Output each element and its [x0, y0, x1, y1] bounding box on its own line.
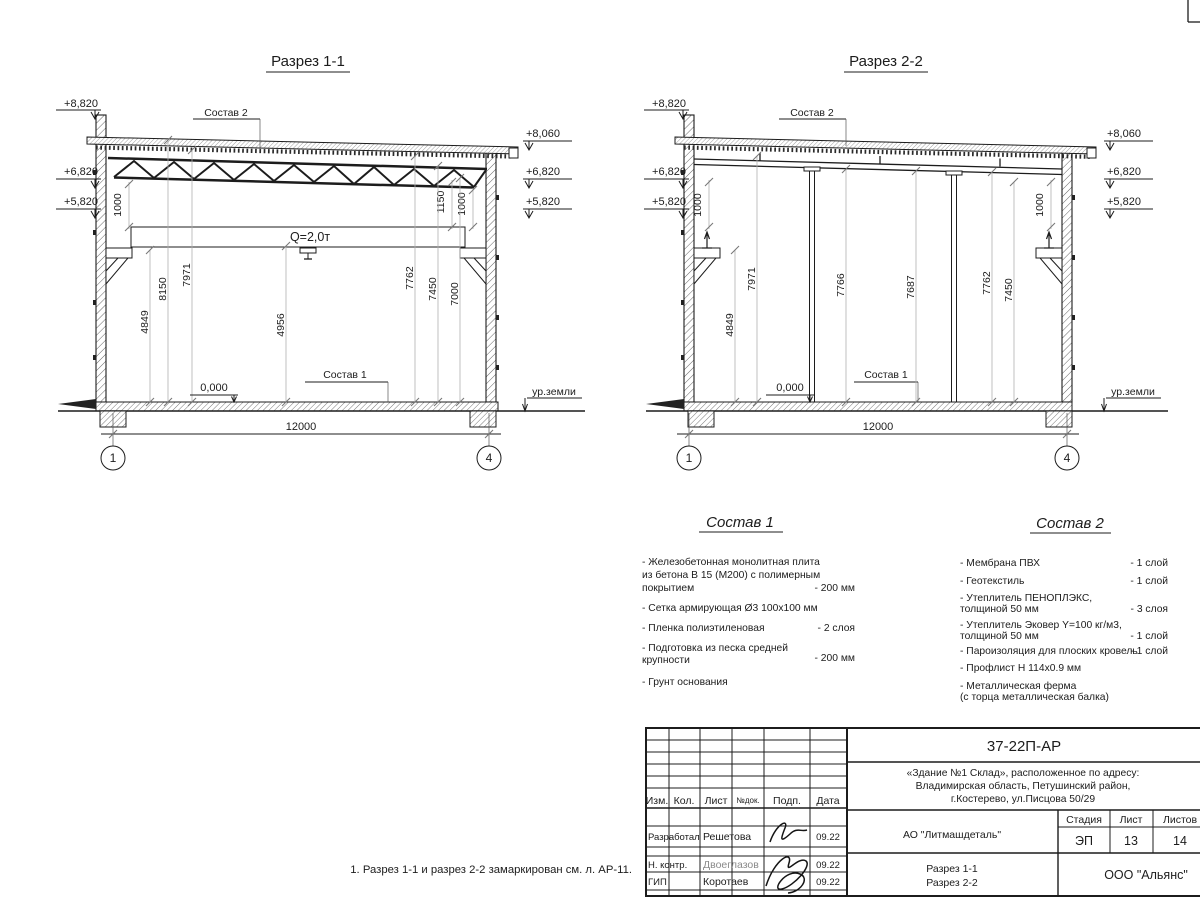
drawing-title-line: Разрез 2-2 — [926, 877, 978, 889]
axis-number: 1 — [110, 451, 117, 465]
height-dim: 7687 — [905, 275, 917, 299]
list-qty: - 1 слой — [1130, 631, 1168, 642]
height-dim: 4849 — [724, 313, 736, 337]
sostav2-callout: Состав 2 — [790, 107, 834, 119]
tb-date: 09.22 — [816, 877, 840, 888]
tb-col-header: Кол. — [674, 795, 695, 807]
elevation-label: +8,820 — [64, 98, 98, 110]
ground-level-label: ур.земли — [532, 386, 576, 398]
s1-floor-slab — [96, 402, 498, 411]
tb-role: Н. контр. — [648, 860, 687, 871]
tb-col-header: Подп. — [773, 795, 801, 807]
list-line: - Профлист Н 114х0.9 мм — [960, 662, 1081, 674]
tb-name: Решетова — [703, 831, 751, 843]
s2-interior-column-2 — [946, 171, 962, 402]
list-line: из бетона В 15 (М200) с полимерным — [642, 569, 820, 581]
object-address-line: «Здание №1 Склад», расположенное по адре… — [907, 768, 1140, 779]
height-dim: 4849 — [139, 310, 151, 334]
height-dim: 7000 — [449, 282, 461, 306]
height-dim: 7971 — [746, 267, 758, 291]
elevation-label: +5,820 — [652, 196, 686, 208]
list-line: - Пароизоляция для плоских кровель — [960, 646, 1138, 657]
height-dim: 7450 — [1003, 278, 1015, 302]
span-dim: 12000 — [286, 421, 317, 433]
section-2-2-drawing: Разрез 2-2 — [644, 53, 1168, 470]
organization-name: ООО "Альянс" — [1104, 868, 1188, 882]
elevation-label: +8,060 — [1107, 128, 1141, 140]
s2-crane-rail-marker — [702, 232, 712, 248]
sheets-header: Листов — [1163, 814, 1198, 826]
tb-col-header: Изм. — [646, 795, 669, 807]
height-dim: 4956 — [275, 313, 287, 337]
list-line: - Подготовка из песка средней — [642, 643, 788, 654]
list-line: - Утеплитель Эковер Y=100 кг/м3, — [960, 620, 1122, 631]
axis-number: 4 — [1064, 451, 1071, 465]
list-line: толщиной 50 мм — [960, 604, 1039, 615]
object-address-line: Владимирская область, Петушинский район, — [916, 780, 1131, 792]
list-line: - Металлическая ферма — [960, 680, 1077, 692]
elevation-label: +8,060 — [526, 128, 560, 140]
s1-left-corbel — [106, 248, 132, 284]
zero-level-label: 0,000 — [776, 382, 804, 394]
sheet-canvas: Разрез 1-1 — [0, 0, 1200, 900]
s2-roof-slab — [675, 137, 1096, 154]
section-1-1-drawing: Разрез 1-1 — [56, 53, 585, 470]
list-line: покрытием — [642, 583, 694, 594]
s1-right-wall — [486, 152, 496, 402]
tb-date: 09.22 — [816, 860, 840, 871]
s1-right-corbel — [460, 248, 486, 284]
s1-hoist-trolley — [300, 248, 316, 259]
dim-label: 1000 — [456, 192, 468, 216]
sheets-total: 14 — [1173, 834, 1187, 848]
sheet-number: 13 — [1124, 834, 1138, 848]
s2-interior-column-1 — [804, 167, 820, 402]
sheet-header: Лист — [1120, 814, 1143, 826]
signature — [766, 857, 807, 893]
sostav1-callout: Состав 1 — [864, 369, 908, 381]
height-dim: 7766 — [835, 273, 847, 297]
tb-role: ГИП — [648, 877, 667, 888]
s1-right-footing — [470, 411, 496, 427]
s2-roof-end-cap — [1087, 148, 1096, 158]
crane-capacity-label: Q=2,0т — [290, 230, 330, 244]
sostav2-title: Состав 2 — [1036, 515, 1104, 532]
sostav1-callout: Состав 1 — [323, 369, 367, 381]
list-qty: - 200 мм — [815, 653, 856, 664]
sostav1-list: Состав 1 - Железобетонная монолитная пли… — [642, 514, 855, 688]
list-line: - Мембрана ПВХ — [960, 557, 1040, 569]
list-qty: - 1 слой — [1130, 576, 1168, 587]
axis-number: 1 — [686, 451, 693, 465]
document-code: 37-22П-АР — [987, 738, 1061, 755]
section-1-title: Разрез 1-1 — [271, 53, 345, 70]
height-dim: 7450 — [427, 277, 439, 301]
sostav2-list: Состав 2 - Мембрана ПВХ - 1 слой - Геоте… — [960, 515, 1168, 703]
s2-ground-wedge — [646, 399, 684, 409]
height-dim: 7971 — [181, 263, 193, 287]
s1-left-wall — [96, 115, 106, 402]
height-dim: 7762 — [404, 266, 416, 290]
object-address-line: г.Костерево, ул.Писцова 50/29 — [951, 794, 1095, 805]
dim-label: 1000 — [692, 193, 704, 217]
s2-right-wall — [1062, 152, 1072, 402]
s2-floor-slab — [684, 402, 1072, 411]
list-line: (с торца металлическая балка) — [960, 691, 1109, 703]
s2-left-corbel — [694, 248, 720, 284]
section-2-title: Разрез 2-2 — [849, 53, 923, 70]
list-line: - Утеплитель ПЕНОПЛЭКС, — [960, 593, 1092, 604]
elevation-label: +5,820 — [526, 196, 560, 208]
s2-roof-beam-bottom — [694, 165, 1062, 175]
elevation-label: +6,820 — [526, 166, 560, 178]
axis-number: 4 — [486, 451, 493, 465]
s2-left-footing — [688, 411, 714, 427]
ground-level-label: ур.земли — [1111, 386, 1155, 398]
s2-right-footing — [1046, 411, 1072, 427]
tb-col-header: Дата — [816, 795, 839, 807]
s2-right-corbel — [1036, 248, 1062, 284]
s1-roof-end-cap — [509, 148, 518, 158]
tb-role: Разработал — [648, 832, 700, 843]
zero-level-label: 0,000 — [200, 382, 228, 394]
height-dim: 7762 — [981, 271, 993, 295]
s1-ground-wedge — [58, 399, 96, 409]
tb-col-header: Лист — [705, 795, 728, 807]
sostav1-title: Состав 1 — [706, 514, 774, 531]
list-qty: - 1 слой — [1130, 646, 1168, 657]
tb-col-header: №док. — [736, 796, 759, 805]
elevation-label: +5,820 — [64, 196, 98, 208]
dim-label: 1000 — [112, 193, 124, 217]
list-line: - Сетка армирующая Ø3 100х100 мм — [642, 603, 818, 614]
span-dim: 12000 — [863, 421, 894, 433]
s2-left-wall — [684, 115, 694, 402]
tb-name: Двоеглазов — [703, 859, 759, 871]
list-qty: - 2 слоя — [818, 623, 855, 634]
change-table: Изм. Кол. Лист №док. Подп. Дата Разработ… — [646, 728, 847, 896]
s2-crane-rail-marker — [1044, 232, 1054, 248]
sostav2-callout: Состав 2 — [204, 107, 248, 119]
stage-header: Стадия — [1066, 814, 1102, 826]
list-qty: - 200 мм — [815, 583, 856, 594]
list-line: - Грунт основания — [642, 677, 728, 688]
list-qty: - 1 слой — [1130, 558, 1168, 569]
title-block-right: 37-22П-АР «Здание №1 Склад», расположенн… — [847, 738, 1200, 896]
elevation-label: +6,820 — [1107, 166, 1141, 178]
dim-label: 1000 — [1034, 193, 1046, 217]
elevation-label: +6,820 — [652, 166, 686, 178]
s1-structure — [58, 115, 585, 427]
stage-value: ЭП — [1075, 834, 1093, 848]
drawing-sheet: Разрез 1-1 — [0, 0, 1200, 900]
tb-name: Коротаев — [703, 876, 749, 888]
dim-label: 1150 — [435, 191, 447, 214]
list-line: - Железобетонная монолитная плита — [642, 556, 820, 568]
sheet-note: 1. Разрез 1-1 и разрез 2-2 замаркирован … — [350, 864, 632, 876]
list-line: - Пленка полиэтиленовая — [642, 623, 765, 634]
frame-corner-fragment — [1188, 0, 1200, 22]
list-line: - Геотекстиль — [960, 576, 1024, 587]
elevation-label: +8,820 — [652, 98, 686, 110]
elevation-label: +6,820 — [64, 166, 98, 178]
tb-date: 09.22 — [816, 832, 840, 843]
s2-dimensions: 1000 1000 4849 7971 7766 7687 7762 7450 … — [677, 152, 1161, 470]
customer-name: АО "Литмашдеталь" — [903, 829, 1001, 841]
list-line: крупности — [642, 655, 690, 666]
drawing-title-line: Разрез 1-1 — [926, 863, 978, 875]
elevation-label: +5,820 — [1107, 196, 1141, 208]
list-line: толщиной 50 мм — [960, 631, 1039, 642]
s1-dimensions: 1000 1150 1000 4849 8150 7971 4956 7762 … — [101, 136, 582, 470]
title-block: Изм. Кол. Лист №док. Подп. Дата Разработ… — [645, 728, 1200, 897]
s2-roof-beam-top — [694, 159, 1062, 169]
list-qty: - 3 слоя — [1131, 604, 1168, 615]
height-dim: 8150 — [157, 277, 169, 301]
